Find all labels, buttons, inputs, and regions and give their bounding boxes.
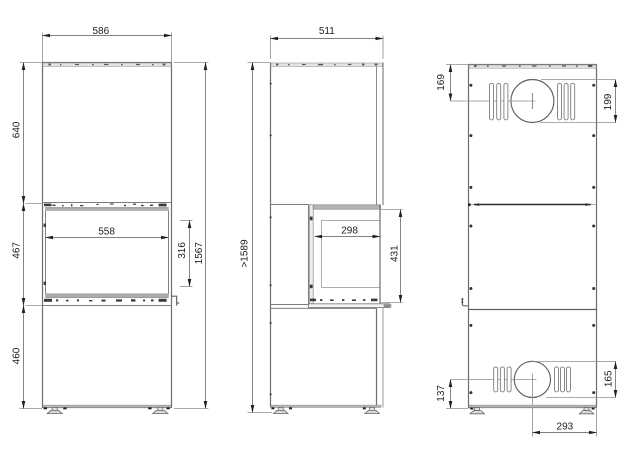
svg-text:640: 640 [12, 121, 23, 138]
svg-text:>1589: >1589 [240, 239, 251, 268]
svg-text:316: 316 [177, 242, 188, 259]
svg-text:1567: 1567 [194, 242, 205, 265]
svg-text:511: 511 [319, 26, 335, 37]
svg-text:431: 431 [389, 245, 400, 262]
svg-text:460: 460 [12, 347, 23, 364]
svg-text:293: 293 [557, 422, 574, 433]
svg-text:165: 165 [604, 370, 615, 387]
svg-text:199: 199 [603, 93, 614, 110]
svg-text:558: 558 [98, 226, 115, 237]
svg-text:467: 467 [12, 242, 23, 259]
svg-text:169: 169 [436, 74, 447, 91]
svg-text:586: 586 [92, 26, 109, 37]
svg-text:137: 137 [436, 385, 447, 402]
svg-text:298: 298 [341, 225, 358, 236]
